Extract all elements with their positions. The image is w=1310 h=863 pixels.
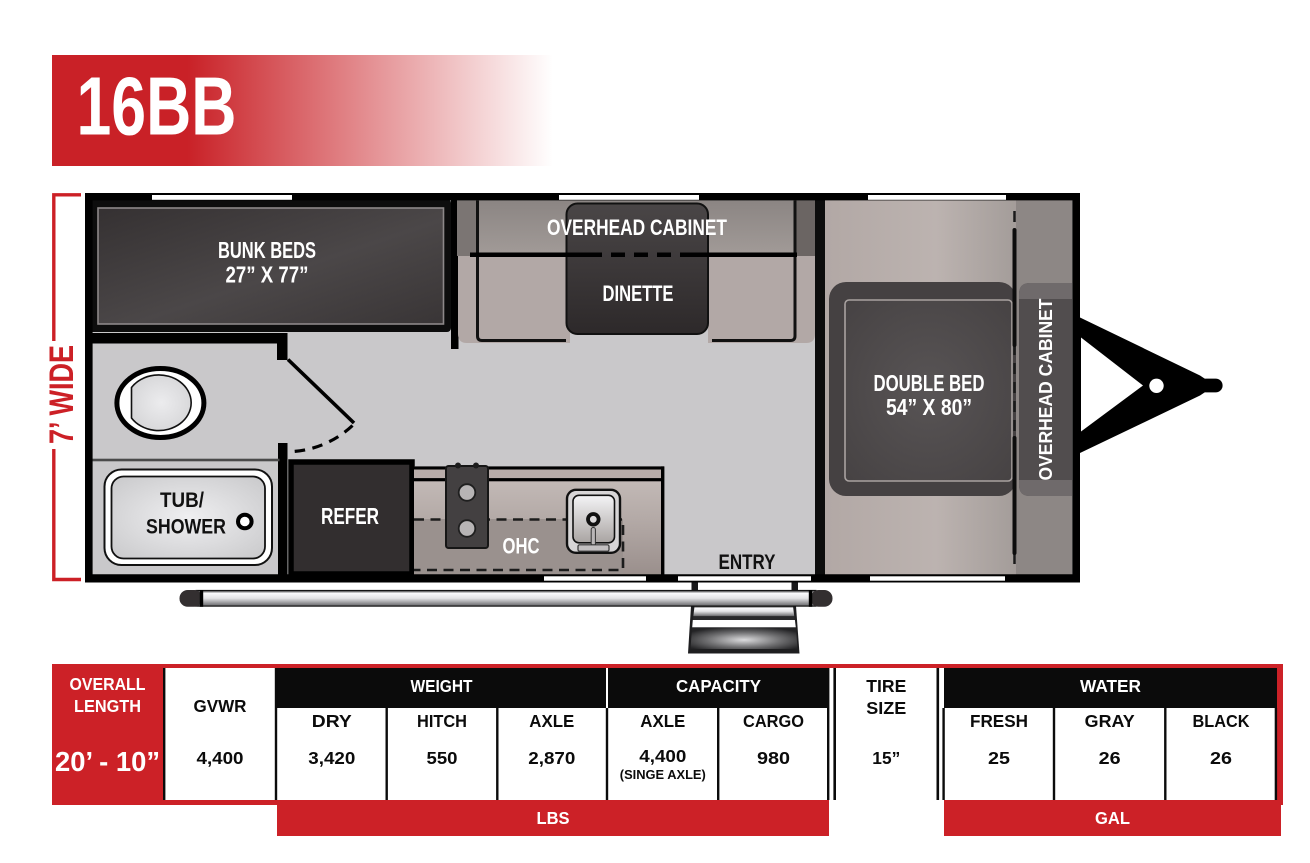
svg-text:DRY: DRY — [312, 711, 352, 731]
svg-text:SIZE: SIZE — [866, 698, 906, 718]
svg-text:TIRE: TIRE — [866, 676, 906, 696]
svg-text:4,400: 4,400 — [197, 748, 244, 768]
svg-text:CARGO: CARGO — [743, 711, 804, 731]
svg-text:BUNK BEDS: BUNK BEDS — [218, 237, 316, 263]
svg-text:TUB/: TUB/ — [160, 488, 204, 512]
svg-text:WATER: WATER — [1080, 676, 1141, 696]
svg-text:DINETTE: DINETTE — [603, 281, 674, 306]
svg-text:3,420: 3,420 — [308, 748, 355, 768]
svg-text:AXLE: AXLE — [529, 711, 574, 731]
svg-text:OVERHEAD CABINET: OVERHEAD CABINET — [1035, 298, 1056, 481]
svg-text:CAPACITY: CAPACITY — [676, 676, 761, 696]
svg-text:REFER: REFER — [321, 503, 379, 529]
svg-text:980: 980 — [757, 748, 790, 768]
svg-text:HITCH: HITCH — [417, 711, 467, 731]
svg-text:(SINGE AXLE): (SINGE AXLE) — [620, 767, 706, 782]
svg-text:54” X 80”: 54” X 80” — [886, 394, 972, 420]
svg-text:LBS: LBS — [537, 808, 570, 828]
svg-text:550: 550 — [427, 748, 458, 768]
svg-text:AXLE: AXLE — [640, 711, 685, 731]
svg-text:LENGTH: LENGTH — [74, 696, 141, 716]
svg-text:ENTRY: ENTRY — [719, 550, 776, 574]
svg-text:16BB: 16BB — [77, 60, 237, 153]
svg-text:FRESH: FRESH — [970, 711, 1028, 731]
svg-text:26: 26 — [1210, 748, 1232, 768]
svg-text:2,870: 2,870 — [528, 748, 575, 768]
svg-text:GRAY: GRAY — [1085, 711, 1135, 731]
svg-text:OVERALL: OVERALL — [70, 674, 146, 694]
svg-text:27” X 77”: 27” X 77” — [226, 262, 309, 288]
svg-text:OVERHEAD CABINET: OVERHEAD CABINET — [547, 215, 727, 240]
svg-text:4,400: 4,400 — [639, 746, 686, 766]
svg-text:DOUBLE BED: DOUBLE BED — [874, 370, 985, 396]
svg-text:GVWR: GVWR — [194, 696, 247, 716]
svg-text:WEIGHT: WEIGHT — [411, 676, 473, 696]
svg-text:15”: 15” — [872, 748, 900, 768]
svg-text:25: 25 — [988, 748, 1010, 768]
svg-text:SHOWER: SHOWER — [146, 515, 226, 539]
svg-text:BLACK: BLACK — [1193, 711, 1250, 731]
svg-text:20’ - 10”: 20’ - 10” — [55, 746, 160, 777]
svg-text:GAL: GAL — [1095, 808, 1130, 828]
svg-text:OHC: OHC — [503, 534, 540, 559]
svg-text:7’ WIDE: 7’ WIDE — [43, 345, 81, 444]
svg-text:26: 26 — [1099, 748, 1121, 768]
